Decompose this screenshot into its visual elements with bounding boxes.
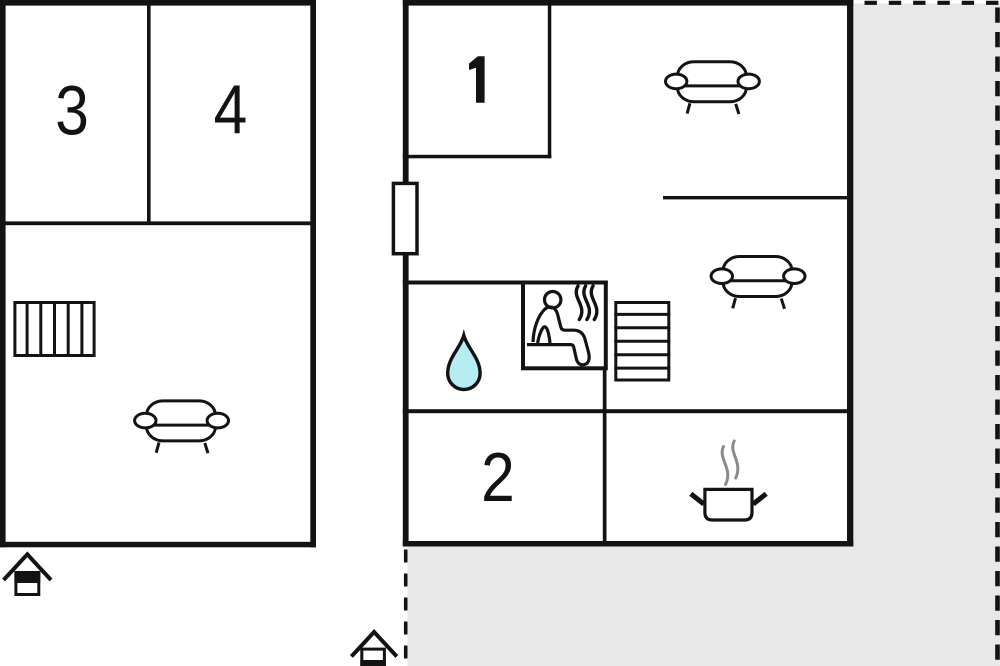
svg-text:2: 2 (481, 438, 515, 516)
svg-text:3: 3 (55, 72, 89, 150)
svg-text:4: 4 (214, 71, 248, 149)
